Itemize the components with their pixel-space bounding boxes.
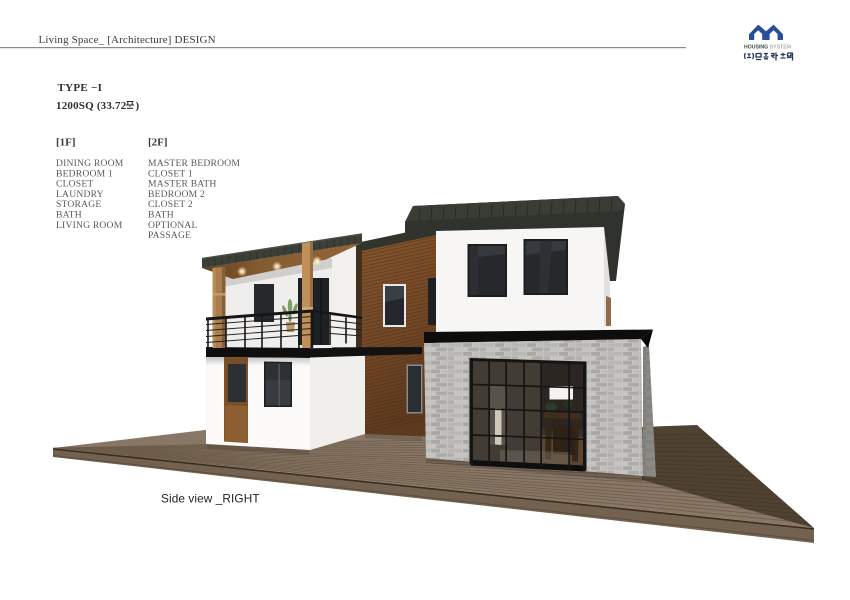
svg-text:1200SQ (33.72: 1200SQ (33.72 [56, 100, 127, 112]
svg-text:[2F]: [2F] [148, 137, 168, 149]
svg-text:Side view _RIGHT: Side view _RIGHT [161, 492, 260, 506]
svg-text:PASSAGE: PASSAGE [148, 230, 191, 241]
svg-text:): ) [136, 100, 140, 112]
svg-text:LIVING ROOM: LIVING ROOM [56, 220, 123, 231]
svg-text:TYPE −I: TYPE −I [58, 82, 103, 94]
svg-text:HOUSING SYSTEM: HOUSING SYSTEM [744, 45, 791, 51]
svg-text:Living Space_ [Architecture] D: Living Space_ [Architecture] DESIGN [39, 34, 216, 46]
svg-text:[1F]: [1F] [56, 137, 76, 149]
